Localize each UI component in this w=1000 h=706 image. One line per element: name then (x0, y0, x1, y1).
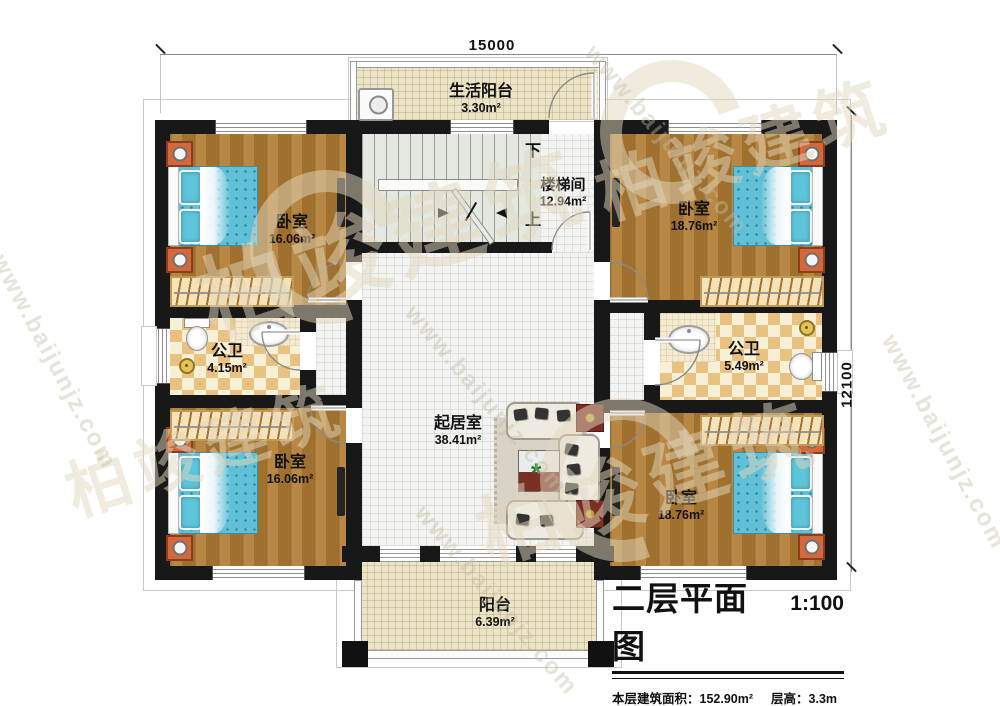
dimension-right-label: 12100 (839, 355, 856, 415)
wall (346, 134, 362, 262)
wall (594, 134, 610, 262)
nightstand (166, 141, 193, 167)
wall (420, 546, 440, 562)
sink-icon (249, 321, 289, 347)
sink-icon (668, 325, 710, 354)
wardrobe (700, 276, 824, 307)
wardrobe (170, 276, 294, 307)
room-label-life-balcony: 生活阳台 3.30m² (449, 83, 513, 115)
pillow (179, 456, 202, 491)
sofa-cushion (515, 513, 529, 526)
bed-headboard (168, 452, 179, 534)
sofa-cushion (513, 408, 527, 421)
bed-sheet-fold (200, 453, 232, 533)
shower-icon (799, 320, 815, 336)
extension-line (836, 55, 837, 113)
wall (342, 546, 380, 562)
toilet-icon (789, 353, 814, 380)
wall (512, 120, 549, 134)
bed (168, 166, 258, 246)
floor-plan: 15000 12100 (0, 0, 1000, 706)
bed-headboard (812, 166, 823, 246)
pillow (179, 209, 202, 244)
wall (346, 300, 362, 408)
window-sill (141, 326, 157, 386)
balcony-pillar (342, 641, 368, 667)
watermark-site: www.baijunjz.com (0, 250, 122, 474)
wall (155, 566, 212, 580)
pillow (789, 456, 812, 491)
window (212, 566, 305, 580)
plan-scale: 1:100 (790, 592, 844, 616)
tv (337, 178, 345, 227)
plant-icon: * (531, 468, 542, 478)
dimension-tick (155, 44, 166, 55)
bed-sheet-fold (759, 167, 791, 245)
balcony-pillar (588, 641, 614, 667)
stair-handrail (378, 179, 518, 191)
pillow (789, 170, 812, 205)
side-table (576, 500, 604, 528)
watermark-site: www.baijunjz.com (875, 330, 1000, 554)
sofa-cushion (566, 463, 580, 476)
wall (303, 566, 362, 580)
room-label-stairwell: 楼梯间 12.94m² (540, 178, 587, 209)
wardrobe (700, 415, 824, 446)
wall (516, 546, 536, 562)
stair-direction-arrow (496, 208, 507, 218)
window (668, 120, 762, 134)
bed-headboard (168, 166, 179, 246)
wall (155, 395, 346, 408)
room-label-bathroom-left: 公卫 4.15m² (207, 343, 247, 375)
bed (733, 452, 823, 534)
pillow (789, 495, 812, 530)
nightstand (798, 247, 825, 273)
room-label-bathroom-right: 公卫 5.49m² (724, 341, 764, 373)
life-balcony-parapet (350, 61, 606, 68)
tv (612, 178, 620, 227)
extension-line (160, 55, 161, 113)
plan-title: 二层平面图 (612, 572, 778, 668)
title-underline (612, 671, 844, 679)
room-label-bedroom-top-left: 卧室 16.06m² (269, 214, 316, 246)
bed (733, 166, 823, 246)
dimension-line-top (160, 54, 837, 55)
bed (168, 452, 258, 534)
nightstand (798, 534, 825, 560)
wall (300, 305, 316, 332)
sofa-cushion (534, 407, 548, 419)
wall (576, 546, 614, 562)
nightstand (166, 535, 193, 561)
bed-headboard (812, 452, 823, 534)
life-balcony-parapet (599, 61, 606, 122)
washing-machine-icon (358, 88, 394, 121)
sofa (506, 500, 584, 540)
pillow (179, 495, 202, 530)
dimension-top-label: 15000 (469, 37, 516, 54)
wall (644, 300, 660, 340)
tv (337, 467, 345, 516)
sofa-cushion (557, 409, 571, 421)
sofa-cushion (539, 514, 553, 526)
wall (305, 120, 450, 134)
sofa-cushion (564, 443, 579, 456)
stair-down-label: 下 (525, 143, 541, 161)
life-balcony-parapet (350, 61, 357, 122)
bed-sheet-fold (200, 167, 232, 245)
wall (594, 120, 668, 134)
room-label-balcony: 阳台 6.39m² (475, 597, 515, 629)
dimension-tick (832, 44, 843, 55)
wall (362, 242, 552, 253)
floor-height-label: 层高：3.3m (771, 688, 837, 706)
wall (594, 400, 837, 413)
toilet-icon (812, 352, 822, 381)
floor-area-label: 本层建筑面积：152.90m² (612, 688, 753, 706)
room-label-bedroom-bottom-right: 卧室 18.76m² (658, 490, 705, 522)
dimension-line-right (851, 115, 852, 572)
stair-up-label: 上 (525, 212, 541, 230)
balcony-parapet (354, 650, 604, 659)
stair-direction-arrow (438, 208, 449, 218)
room-label-bedroom-bottom-left: 卧室 16.06m² (267, 454, 314, 486)
nightstand (798, 141, 825, 167)
room-label-bedroom-top-right: 卧室 18.76m² (671, 201, 718, 233)
window (215, 120, 307, 134)
tv (612, 467, 620, 516)
shower-icon (179, 358, 195, 374)
side-table (576, 404, 604, 432)
window (155, 328, 170, 384)
wall (300, 370, 316, 408)
pillow (179, 170, 202, 205)
window (822, 352, 837, 392)
wall (644, 385, 660, 413)
toilet-icon (186, 326, 208, 351)
window (450, 120, 514, 134)
wall (594, 300, 610, 413)
sliding-door (362, 546, 594, 562)
nightstand (166, 247, 193, 273)
sofa-cushion (565, 482, 579, 494)
pillow (789, 209, 812, 244)
wardrobe (170, 410, 294, 441)
sofa (558, 434, 600, 506)
room-label-living-room: 起居室 38.41m² (434, 415, 482, 447)
title-block: 二层平面图 1:100 本层建筑面积：152.90m² 层高：3.3m (612, 572, 844, 706)
bed-sheet-fold (759, 453, 791, 533)
